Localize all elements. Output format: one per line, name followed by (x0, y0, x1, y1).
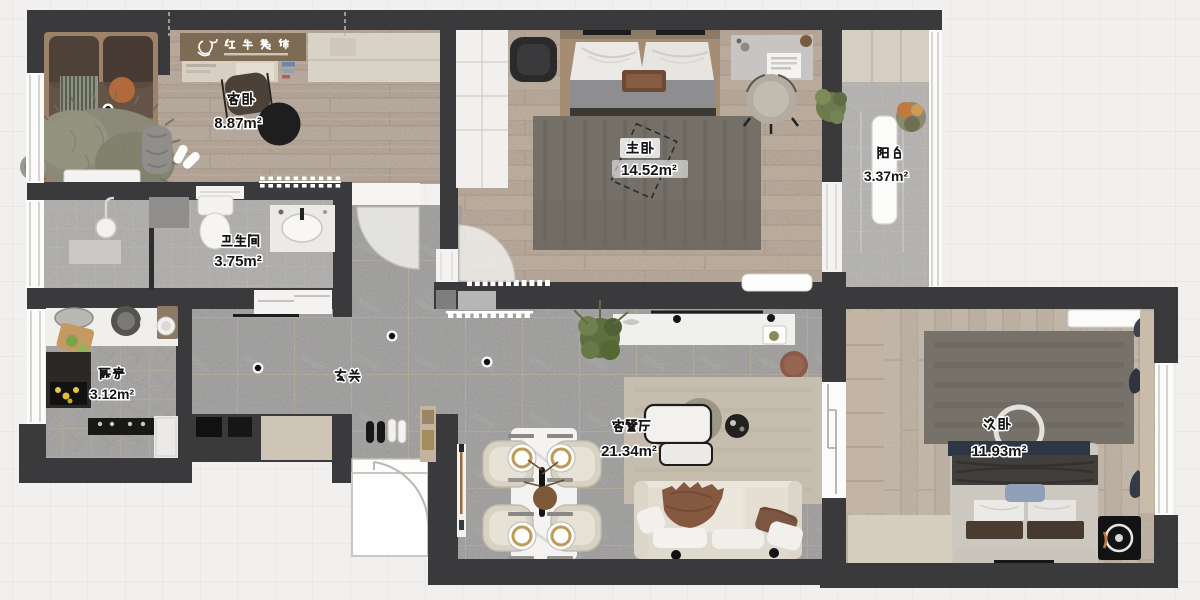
svg-text:8.87m²: 8.87m² (214, 115, 262, 132)
svg-text:14.52m²: 14.52m² (621, 162, 677, 179)
svg-text:3.75m²: 3.75m² (214, 253, 262, 270)
svg-text:3.37m²: 3.37m² (864, 168, 909, 184)
svg-text:11.93m²: 11.93m² (971, 443, 1026, 460)
svg-text:21.34m²: 21.34m² (601, 443, 657, 460)
svg-text:3.12m²: 3.12m² (90, 386, 135, 402)
